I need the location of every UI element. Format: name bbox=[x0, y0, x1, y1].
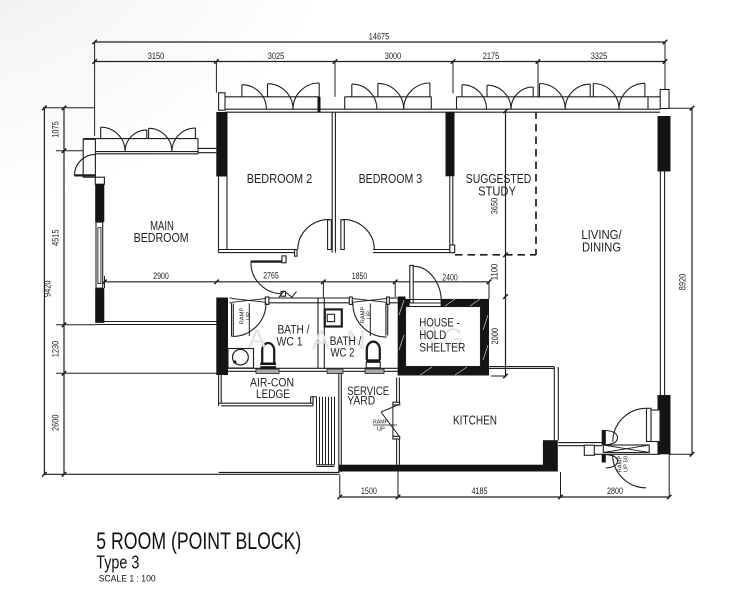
svg-text:5 ROOM (POINT BLOCK): 5 ROOM (POINT BLOCK) bbox=[96, 528, 301, 555]
svg-text:SCALE 1 : 100: SCALE 1 : 100 bbox=[99, 574, 156, 584]
svg-text:RAMP: RAMP bbox=[618, 455, 624, 472]
svg-text:3150: 3150 bbox=[148, 51, 165, 62]
svg-text:2400: 2400 bbox=[442, 273, 458, 284]
svg-text:BEDROOM 3: BEDROOM 3 bbox=[359, 171, 423, 186]
svg-text:2175: 2175 bbox=[483, 51, 500, 62]
svg-text:1230: 1230 bbox=[51, 341, 62, 358]
svg-text:A: A bbox=[312, 325, 330, 355]
svg-text:2900: 2900 bbox=[153, 271, 169, 282]
svg-text:4185: 4185 bbox=[472, 486, 488, 497]
svg-text:RAMP: RAMP bbox=[360, 306, 366, 323]
svg-text:BEDROOM 2: BEDROOM 2 bbox=[247, 171, 313, 186]
svg-text:4515: 4515 bbox=[51, 230, 62, 247]
svg-text:UP: UP bbox=[377, 427, 385, 433]
svg-text:YARD: YARD bbox=[347, 393, 375, 407]
svg-text:STUDY: STUDY bbox=[478, 184, 516, 199]
svg-text:3025: 3025 bbox=[268, 51, 285, 62]
svg-text:LEDGE: LEDGE bbox=[256, 387, 290, 401]
svg-text:14675: 14675 bbox=[369, 31, 390, 42]
svg-text:WC 1: WC 1 bbox=[277, 335, 303, 349]
svg-text:SHELTER: SHELTER bbox=[419, 341, 465, 355]
svg-text:Type 3: Type 3 bbox=[96, 553, 139, 573]
svg-text:2800: 2800 bbox=[607, 486, 623, 497]
svg-text:UP: UP bbox=[246, 312, 252, 320]
svg-text:KITCHEN: KITCHEN bbox=[453, 413, 497, 428]
svg-text:3325: 3325 bbox=[591, 51, 608, 62]
svg-text:1100: 1100 bbox=[490, 264, 501, 281]
svg-text:8920: 8920 bbox=[678, 274, 689, 291]
svg-text:9420: 9420 bbox=[43, 280, 54, 297]
svg-text:2600: 2600 bbox=[51, 414, 62, 431]
svg-text:3000: 3000 bbox=[385, 51, 402, 62]
svg-text:UP 50: UP 50 bbox=[624, 456, 630, 472]
svg-text:1500: 1500 bbox=[361, 486, 377, 497]
svg-text:RAMP: RAMP bbox=[240, 307, 246, 324]
svg-text:UP: UP bbox=[367, 311, 373, 319]
svg-text:A: A bbox=[248, 324, 266, 354]
svg-text:BEDROOM: BEDROOM bbox=[134, 230, 189, 245]
svg-text:2765: 2765 bbox=[263, 271, 279, 282]
svg-text:3650: 3650 bbox=[490, 198, 501, 215]
svg-text:DINING: DINING bbox=[582, 240, 621, 255]
svg-text:WC 2: WC 2 bbox=[331, 346, 355, 360]
svg-text:2000: 2000 bbox=[490, 328, 501, 345]
svg-text:1075: 1075 bbox=[51, 121, 62, 138]
svg-text:1850: 1850 bbox=[352, 271, 368, 282]
